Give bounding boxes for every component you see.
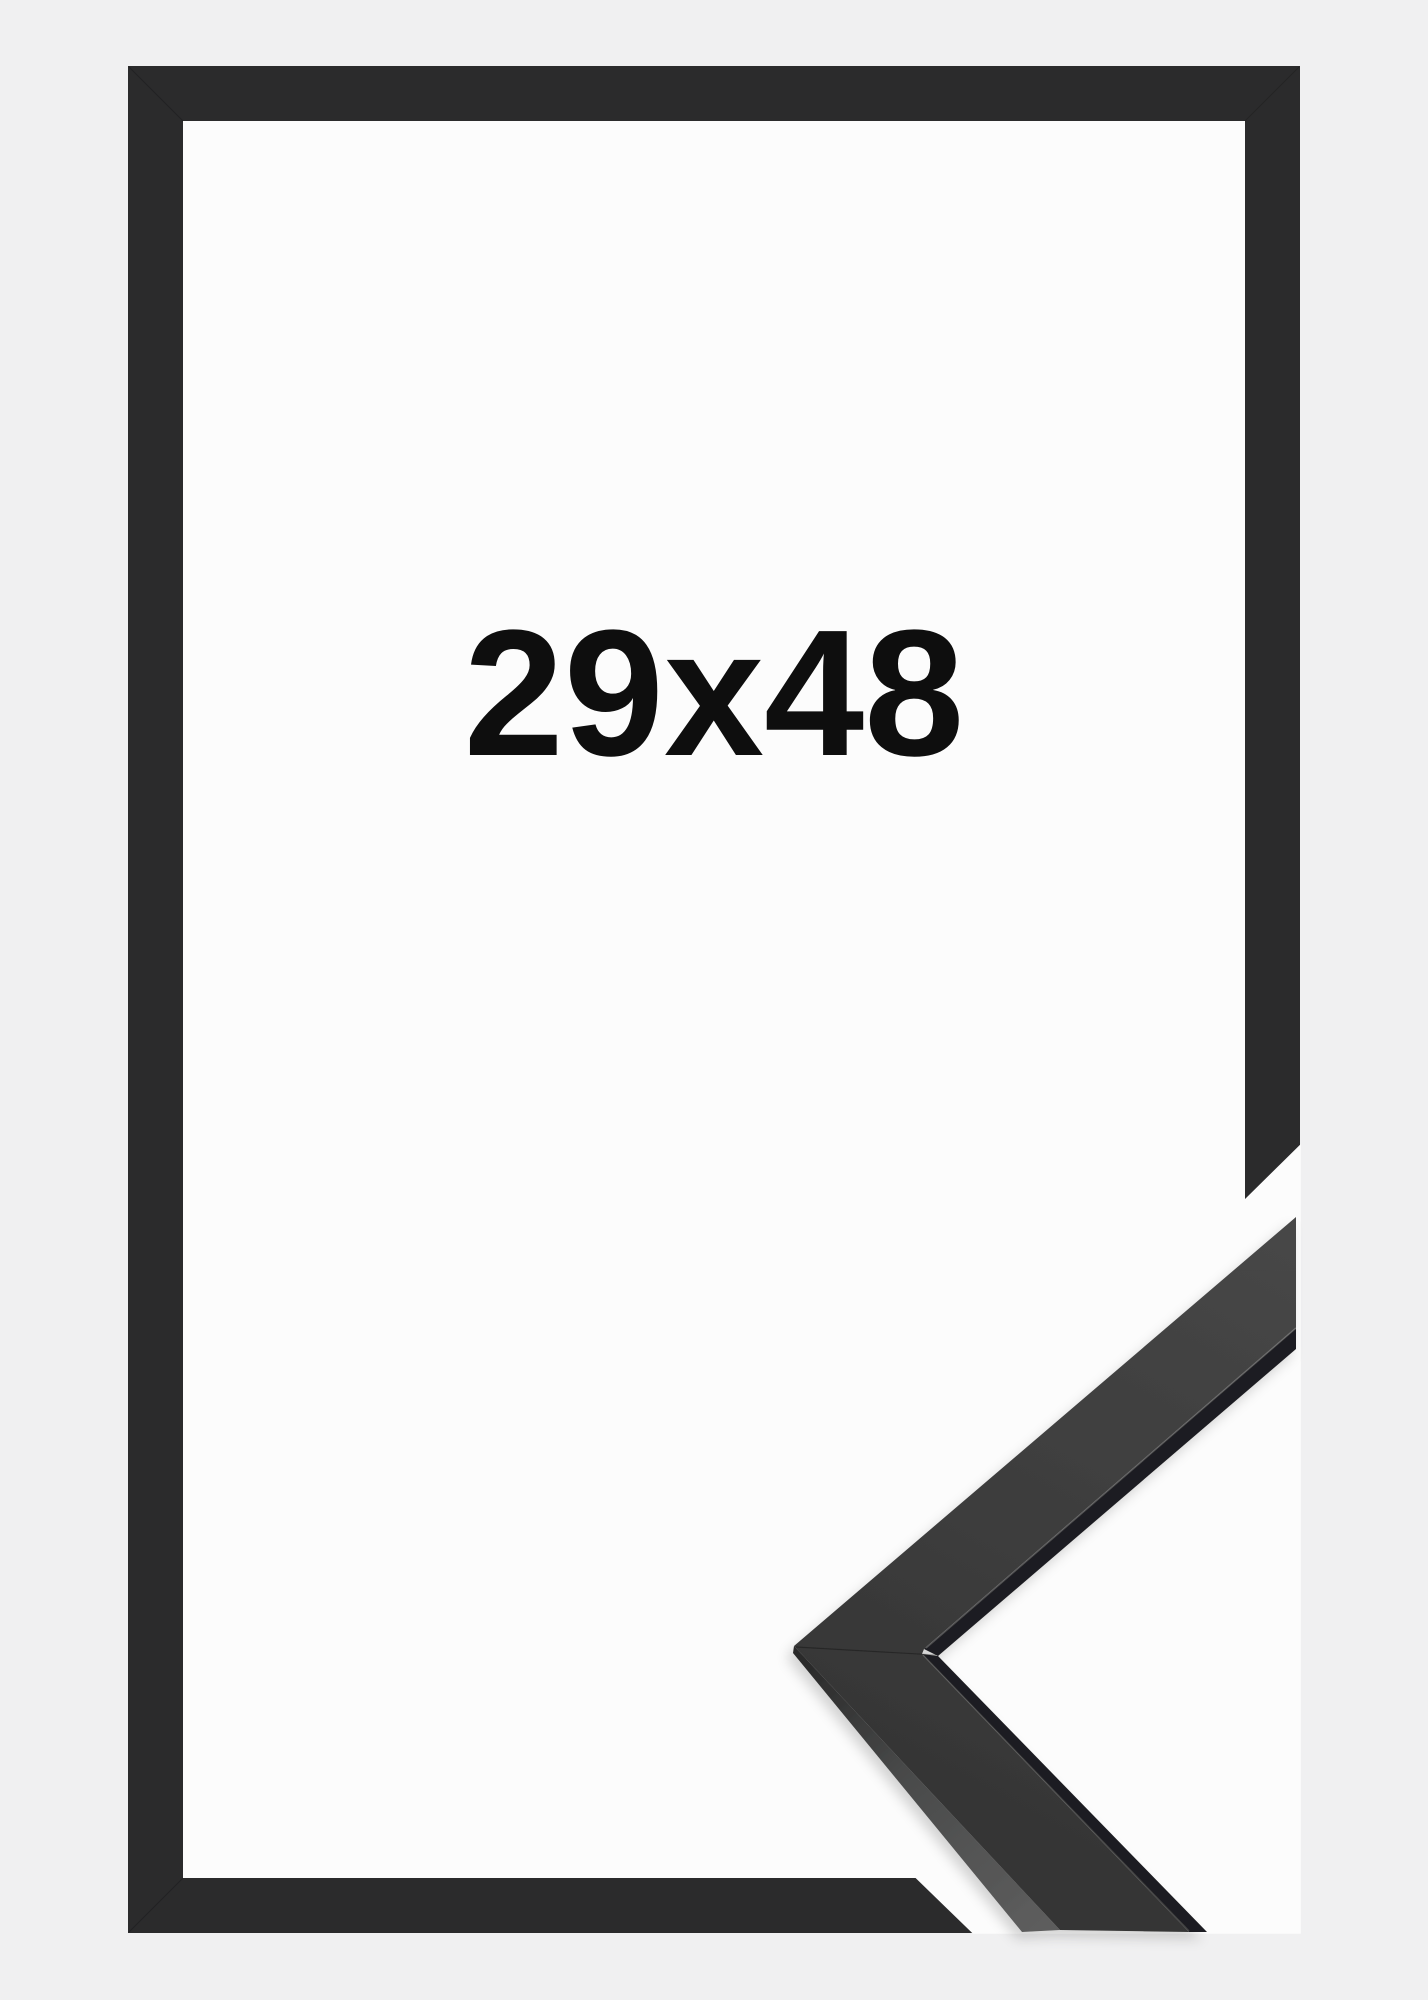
moulding-corner-sample — [793, 1217, 1296, 1932]
product-image: 29x48 — [0, 0, 1428, 2000]
moulding-face — [794, 1217, 1296, 1932]
picture-frame-border — [128, 66, 1300, 1933]
size-label: 29x48 — [128, 589, 1300, 799]
frame-graphic — [0, 0, 1428, 2000]
